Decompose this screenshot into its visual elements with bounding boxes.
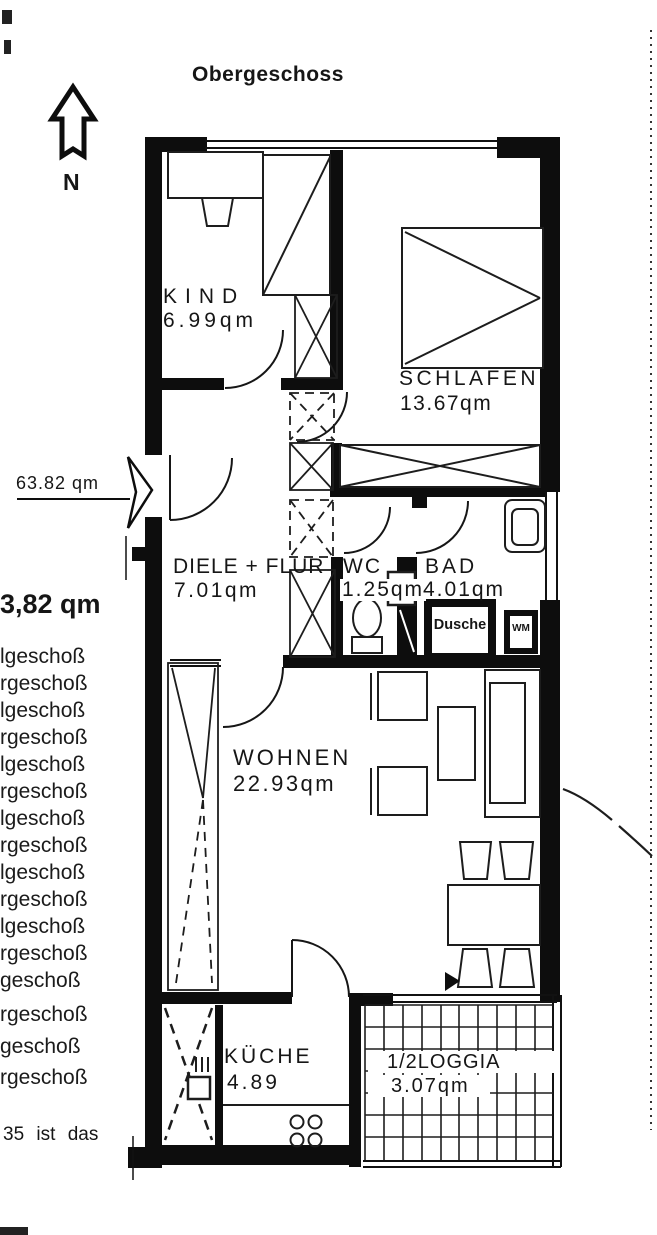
- shower-label: Dusche: [430, 618, 490, 633]
- room-area-bad: 4.01qm: [423, 579, 505, 601]
- dining-chair-symbol: [458, 949, 492, 987]
- margin-floor-line: rgeschoß: [0, 888, 88, 912]
- margin-floor-line: geschoß: [0, 1035, 81, 1059]
- room-area-wohnen: 22.93qm: [233, 772, 336, 795]
- margin-floor-line: rgeschoß: [0, 1066, 88, 1090]
- washing-machine-label: WM: [507, 624, 535, 635]
- margin-floor-line: lgeschoß: [0, 753, 85, 777]
- page-title: Obergeschoss: [192, 64, 344, 86]
- entrance-area-label: 63.82 qm: [16, 474, 99, 493]
- direction-arrow-icon: [445, 972, 460, 991]
- kind-door: [225, 330, 283, 388]
- margin-floor-line: rgeschoß: [0, 1003, 88, 1027]
- room-label-loggia: 1/2LOGGIA: [387, 1052, 501, 1073]
- room-area-kueche: 4.89: [227, 1072, 280, 1094]
- margin-floor-line: lgeschoß: [0, 645, 85, 669]
- room-label-diele: DIELE + FLUR: [173, 556, 324, 578]
- north-arrow-icon: [52, 87, 94, 156]
- room-label-wc: WC: [343, 556, 382, 578]
- margin-floor-line: rgeschoß: [0, 726, 88, 750]
- bad-door: [416, 501, 468, 553]
- wall-tick-marks: [126, 536, 133, 1180]
- margin-floor-line: rgeschoß: [0, 942, 88, 966]
- coffee-table-symbol: [438, 707, 475, 780]
- margin-floor-line: rgeschoß: [0, 672, 88, 696]
- room-label-wohnen: WOHNEN: [233, 746, 351, 769]
- dining-chair-symbol: [500, 949, 534, 987]
- margin-floor-line: geschoß: [0, 969, 81, 993]
- margin-bottom-note: 35 ist das: [3, 1125, 98, 1145]
- desk-symbol: [168, 152, 263, 198]
- room-area-kind: 6.99qm: [163, 310, 257, 332]
- wohnen-door: [223, 667, 283, 727]
- margin-floor-line: rgeschoß: [0, 834, 88, 858]
- armchair-symbol: [371, 672, 427, 720]
- toilet-icon: [352, 599, 382, 653]
- wc-door: [344, 507, 390, 553]
- tall-cupboard-symbol: [168, 663, 218, 990]
- margin-floor-line: lgeschoß: [0, 915, 85, 939]
- wardrobe-symbol: [263, 155, 330, 295]
- chair-symbol: [202, 198, 233, 226]
- stray-curve-line: [563, 789, 652, 856]
- kueche-door: [292, 940, 349, 997]
- margin-floor-line: rgeschoß: [0, 780, 88, 804]
- entrance-door: [170, 455, 232, 520]
- margin-floor-line: lgeschoß: [0, 861, 85, 885]
- room-area-wc: 1.25qm: [340, 579, 426, 601]
- margin-floor-line: lgeschoß: [0, 699, 85, 723]
- margin-bold-area: 3,82 qm: [0, 590, 101, 618]
- room-label-kind: KIND: [163, 286, 245, 308]
- bed-symbol: [402, 228, 543, 368]
- room-label-kueche: KÜCHE: [224, 1046, 313, 1068]
- dresser-symbol: [340, 445, 540, 487]
- dining-chair-symbol: [500, 842, 533, 879]
- closet-symbols: [290, 295, 337, 657]
- stove-burners-icon: [291, 1116, 322, 1147]
- room-area-loggia: 3.07qm: [391, 1076, 470, 1097]
- dining-chair-symbol: [460, 842, 491, 879]
- bathroom-sink-icon: [505, 500, 545, 552]
- room-area-diele: 7.01qm: [174, 580, 259, 602]
- margin-floor-line: lgeschoß: [0, 807, 85, 831]
- dining-table-symbol: [448, 885, 540, 945]
- scanned-floor-plan-page: Obergeschoss N 63.82 qm KIND 6.99qm SCHL…: [0, 0, 657, 1235]
- room-label-bad: BAD: [425, 556, 477, 578]
- shaft-symbol: [165, 1008, 212, 1140]
- room-label-schlafen: SCHLAFEN: [399, 368, 539, 390]
- sofa-symbol: [485, 670, 540, 817]
- room-area-schlafen: 13.67qm: [400, 393, 492, 415]
- north-label: N: [63, 170, 80, 194]
- schlafen-door: [297, 392, 347, 442]
- armchair-symbol: [371, 767, 427, 815]
